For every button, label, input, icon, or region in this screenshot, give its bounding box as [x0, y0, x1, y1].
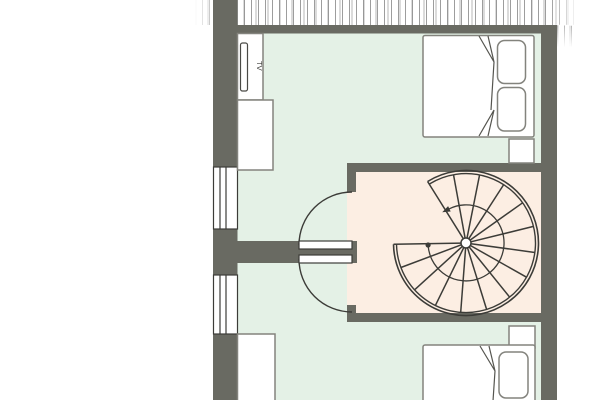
nightstand-top [509, 139, 534, 163]
door-leaf-bottom [299, 255, 352, 263]
stair-newel-post [461, 238, 471, 248]
floor-plan-drawing: TV [0, 0, 600, 400]
door-leaf-top [299, 241, 352, 249]
tv-label: TV [255, 61, 264, 71]
pillow [499, 352, 528, 398]
floor-plan: TV [0, 0, 600, 400]
pillow [498, 41, 526, 84]
top-outer-wall [213, 25, 557, 34]
tv [241, 43, 248, 91]
wardrobe [238, 100, 274, 170]
pillow [498, 88, 526, 132]
stair-room-left-wall-upper [347, 163, 356, 192]
stair-room-top-wall [347, 163, 541, 172]
right-outer-wall [541, 25, 557, 400]
cabinet-bottom [238, 334, 276, 400]
walk-line-start-dot [426, 242, 431, 247]
stair-room-left-wall-lower [347, 305, 356, 317]
stair-room-bottom-wall [347, 313, 541, 322]
